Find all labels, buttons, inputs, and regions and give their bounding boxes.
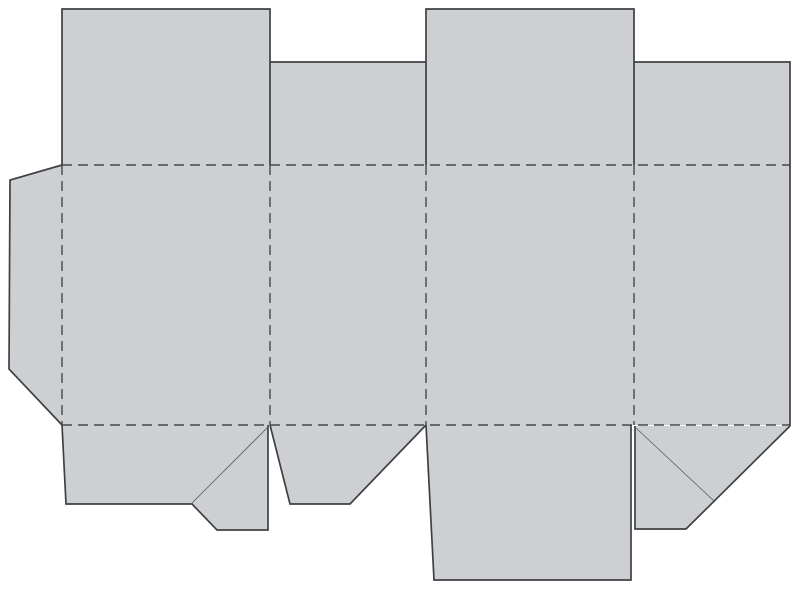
top-flap-2-panel [270,62,426,165]
bottom-flap-1-panel [62,425,268,530]
bottom-flap-4-panel [635,426,790,529]
top-flap-1-panel [62,9,270,165]
dieline-canvas [0,0,800,606]
bottom-flap-2-panel [270,425,426,504]
bottom-flap-3-panel [426,425,631,580]
top-flap-3-panel [426,9,634,165]
glue-flap-panel [9,165,62,425]
top-flap-4-panel [634,62,790,165]
box-dieline-diagram [0,0,800,606]
